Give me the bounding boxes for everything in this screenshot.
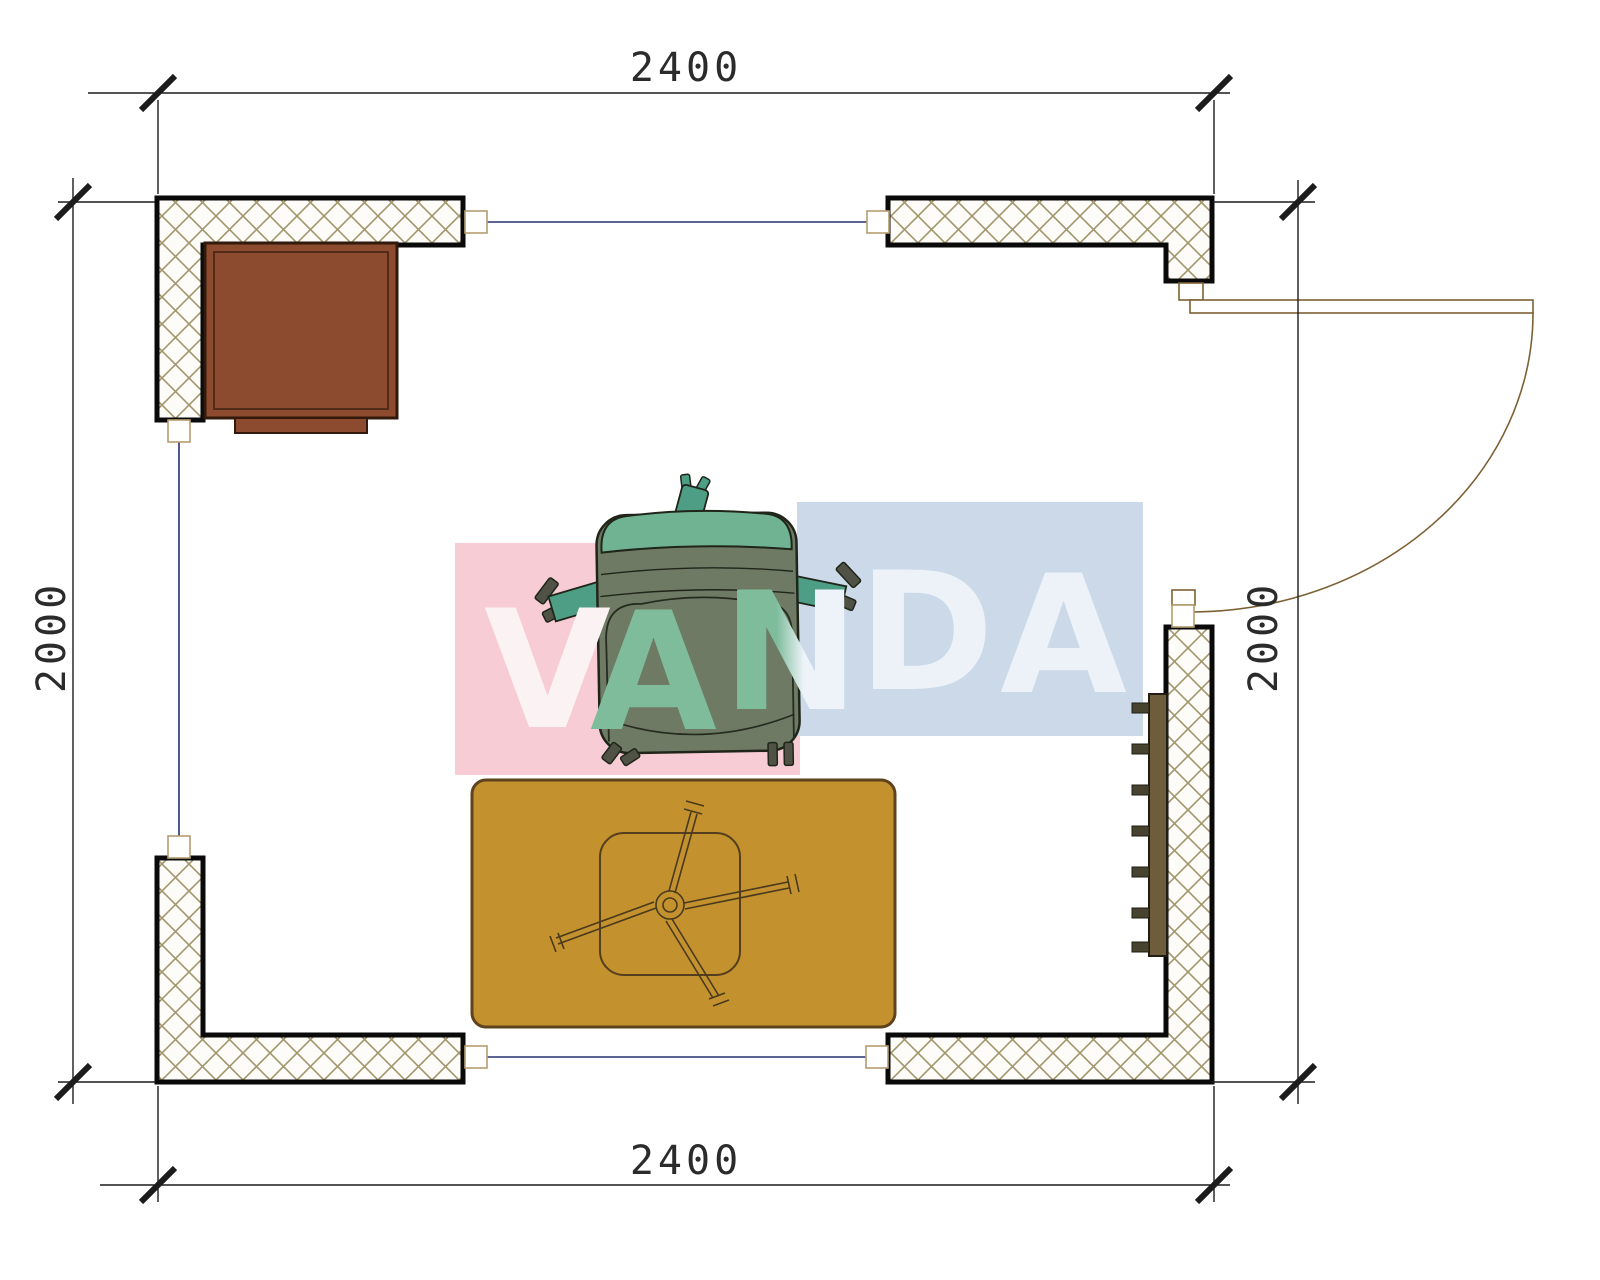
wall-bottom-left <box>157 858 463 1082</box>
wall-top-right <box>888 198 1212 281</box>
radiator-fin <box>1132 942 1149 952</box>
chair-backrest <box>601 509 792 552</box>
window-left <box>168 420 190 858</box>
dimension-label-top: 2400 <box>561 45 811 91</box>
corner-desk <box>205 243 397 433</box>
dimension-label-left: 2000 <box>29 512 75 762</box>
watermark-letter: A <box>1000 554 1127 718</box>
window-frame-icon <box>1172 605 1194 627</box>
dimension-top <box>88 76 1231 194</box>
window-frame-icon <box>867 211 889 233</box>
window-frame-icon <box>866 1046 888 1068</box>
window-frame-icon <box>168 420 190 442</box>
watermark-letter: N <box>722 571 859 735</box>
radiator <box>1132 694 1167 956</box>
radiator-fin <box>1132 867 1149 877</box>
dimension-label-bottom: 2400 <box>561 1138 811 1184</box>
window-top <box>465 211 889 233</box>
radiator-fin <box>1132 744 1149 754</box>
floor-plan-canvas: 2400 2400 2000 2000 V A N D A <box>0 0 1600 1280</box>
door-jamb-bottom <box>1172 590 1195 605</box>
radiator-fin <box>1132 703 1149 713</box>
radiator-fin <box>1132 785 1149 795</box>
watermark-letter: A <box>590 591 717 755</box>
radiator-fin <box>1132 826 1149 836</box>
swing-door <box>1172 283 1533 627</box>
radiator-fin <box>1132 908 1149 918</box>
window-frame-icon <box>168 836 190 858</box>
door-leaf <box>1190 300 1533 313</box>
desk-base <box>235 418 367 433</box>
watermark-letter: D <box>858 551 994 715</box>
dimension-label-right: 2000 <box>1241 512 1287 762</box>
window-frame-icon <box>465 1046 487 1068</box>
door-jamb-top <box>1179 283 1203 300</box>
window-bottom <box>465 1046 888 1068</box>
window-frame-icon <box>465 211 487 233</box>
